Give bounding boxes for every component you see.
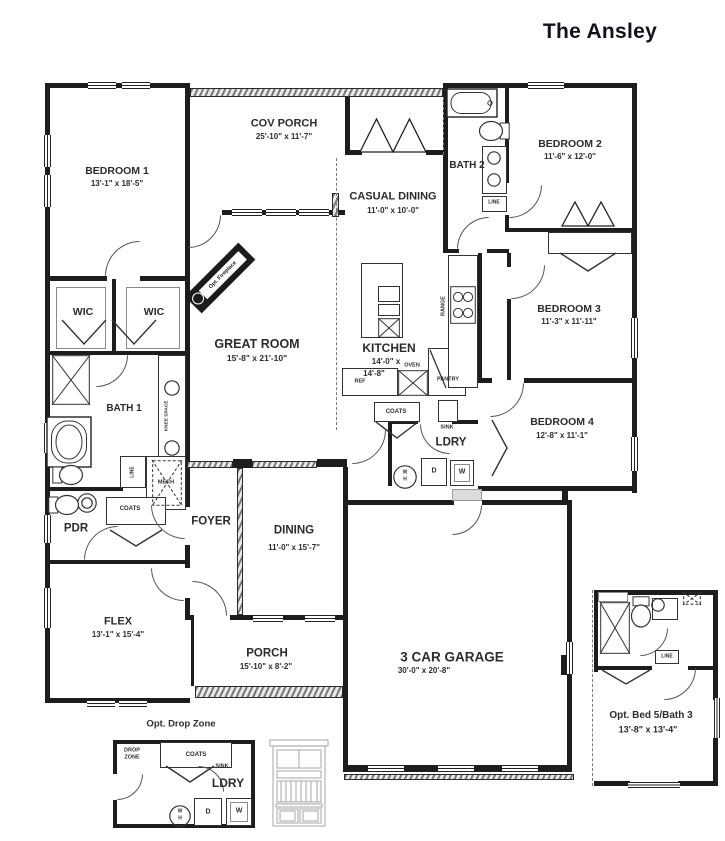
bath1-sink-icon [164, 380, 180, 396]
open-plan-dashed-line [443, 97, 444, 155]
bedroom3-door-arc [511, 265, 545, 299]
bed5-room-door-arc [664, 668, 696, 700]
bed5-entry-doors-icon [602, 670, 650, 684]
wall [113, 740, 117, 774]
label-fx-washer: W [459, 469, 466, 476]
bedroom4-door-arc [490, 383, 524, 417]
wall [713, 738, 718, 786]
wall [632, 83, 637, 493]
label-fx-dryer: D [431, 468, 436, 475]
wall [567, 674, 572, 772]
label-garage-name: 3 CAR GARAGE [400, 650, 504, 664]
bath1-sink-icon [164, 440, 180, 456]
opt-fireplace-label-strip: Opt. Fireplace [199, 251, 247, 299]
window [44, 515, 51, 543]
label-bedroom4-name: BEDROOM 4 [530, 417, 594, 428]
flex-door-arc [151, 568, 184, 601]
label-bedroom1-dims: 13'-1" x 18'-5" [91, 180, 143, 188]
label-fx-wh2: H [403, 478, 407, 483]
half-wall-hatch [344, 774, 574, 780]
label-wic-name: WIC [73, 307, 93, 318]
label-ldry-name: LDRY [212, 777, 244, 789]
bath1-door-arc [96, 355, 128, 387]
label-garage-dims: 30'-0" x 20'-8" [398, 667, 450, 675]
label-insetB-title: Opt. Bed 5/Bath 3 [609, 711, 692, 721]
label-fx-oven: OVEN [404, 363, 420, 369]
label-insetB-dims: 13'-8" x 13'-4" [619, 726, 678, 735]
label-dining-name: DINING [274, 525, 314, 537]
cabinet-elevation-drawing [266, 738, 332, 832]
wall [345, 88, 350, 155]
range-icon [450, 286, 476, 324]
label-fx-line: LINE [661, 655, 672, 660]
wall [45, 560, 189, 564]
label-bath1-name: BATH 1 [106, 404, 141, 414]
wall [426, 150, 448, 155]
label-kitchen-dims1: 14'-0" x [372, 358, 400, 366]
label-pdr-name: PDR [64, 523, 88, 535]
label-bedroom2-name: BEDROOM 2 [538, 139, 602, 150]
wall [713, 590, 718, 700]
half-wall-hatch [252, 461, 317, 468]
bedroom1-door-arc [105, 241, 140, 276]
label-insetA-drop2: ZONE [124, 755, 139, 761]
window [88, 82, 116, 89]
wall [487, 249, 509, 253]
label-kitchen-name: KITCHEN [362, 342, 415, 354]
label-great_room-name: GREAT ROOM [214, 338, 299, 351]
label-fx-knee: KNEE SPACE [166, 401, 171, 432]
window [87, 700, 115, 707]
bedroom2-closet [548, 232, 632, 254]
bath2-tub-icon [446, 88, 498, 118]
window [305, 615, 335, 622]
bedroom2-closet-doors-icon [562, 202, 614, 226]
label-fx-mech: MECH [158, 480, 174, 486]
wic-door-icon [112, 320, 156, 344]
bedroom2-door-arc [509, 185, 542, 218]
label-fx-pantry: PANTRY [437, 377, 459, 383]
bedroom3-closet-doors-icon [560, 253, 616, 271]
label-insetA-drop1: DROP [124, 748, 140, 754]
half-wall-hatch [195, 686, 343, 698]
dishwasher-box [378, 318, 400, 338]
label-wic-name: WIC [144, 307, 164, 318]
window [528, 82, 564, 89]
label-fx-sink: SINK [215, 764, 228, 770]
wall [567, 500, 572, 642]
open-plan-dashed-line [592, 590, 593, 786]
window [438, 765, 474, 772]
island-cabinet [378, 304, 400, 316]
label-fx-range: RANGE [441, 296, 447, 316]
wall [594, 590, 598, 672]
garage-step [452, 489, 482, 501]
wall [443, 249, 459, 253]
label-flex-name: FLEX [104, 617, 132, 628]
foyer-coats-doors-icon [110, 530, 162, 546]
plan-title: The Ansley [505, 20, 695, 44]
wall [45, 276, 107, 281]
window [368, 765, 404, 772]
pdr-sink-icon [81, 497, 93, 509]
half-wall-hatch [187, 461, 233, 468]
label-bath2-name: BATH 2 [449, 161, 484, 171]
bath2-sink-icon [487, 173, 501, 187]
island-cabinet [378, 286, 400, 302]
label-fx-washer: W [236, 808, 243, 815]
window [266, 209, 296, 216]
floor-plan: The Ansley Opt. FireplaceBEDROOM 113'-1 [0, 0, 725, 841]
label-great_room-dims: 15'-8" x 21'-10" [227, 354, 287, 363]
label-fx-dryer: D [205, 809, 210, 816]
wall [317, 459, 347, 467]
label-cov_porch-name: COV PORCH [251, 119, 318, 130]
window [44, 135, 51, 167]
label-flex-dims: 13'-1" x 15'-4" [92, 631, 144, 639]
wall [45, 698, 190, 703]
bed5-shower-icon [600, 602, 630, 654]
coats-doors-icon [376, 422, 418, 438]
front-door-arc [192, 581, 227, 616]
window [714, 698, 720, 738]
label-fx-coats: COATS [120, 506, 141, 512]
wall [191, 620, 194, 686]
bed5-toilet-icon [628, 596, 654, 628]
window [502, 765, 538, 772]
opt-fireplace-icon: Opt. Fireplace [185, 243, 256, 314]
label-fx-line: LINE [131, 466, 136, 477]
window [631, 437, 638, 471]
label-kitchen-dims2: 14'-8" [363, 370, 385, 378]
attic-access-icon [683, 592, 701, 605]
window [631, 318, 638, 358]
window [44, 588, 51, 628]
wic-door-icon [62, 320, 106, 344]
wall [185, 545, 190, 568]
french-doors-icon [360, 119, 426, 152]
pdr-toilet-icon [48, 492, 80, 518]
label-fx-wh2: H [178, 817, 182, 822]
bath2-sink-icon [487, 151, 501, 165]
bed5-shelf [598, 592, 628, 602]
wall [478, 253, 482, 378]
inset-entry-door-arc [117, 774, 143, 800]
open-plan-dashed-line [336, 158, 337, 430]
window [119, 700, 147, 707]
label-fx-coats: COATS [386, 409, 407, 415]
window [44, 175, 51, 207]
ldry-sink [438, 400, 458, 422]
wall [478, 486, 637, 491]
fireplace-group: Opt. Fireplace [180, 238, 260, 318]
inset-coats-doors-icon [166, 766, 214, 782]
opt-fireplace-label: Opt. Fireplace [208, 260, 238, 290]
label-fx-coats: COATS [186, 752, 207, 758]
label-cov_porch-dims: 25'-10" x 11'-7" [256, 133, 312, 141]
window [232, 209, 262, 216]
bath2-toilet-icon [478, 118, 510, 144]
label-dining-dims: 11'-0" x 15'-7" [268, 544, 320, 552]
label-ldry-name: LDRY [436, 437, 467, 449]
label-foyer-name: FOYER [191, 516, 231, 528]
bath1-toilet-icon [52, 462, 84, 488]
window [122, 82, 150, 89]
label-fx-sink: SINK [440, 425, 453, 431]
wall [185, 83, 190, 215]
label-bedroom3-dims: 11'-3" x 11'-11" [541, 318, 596, 326]
label-casual_dining-name: CASUAL DINING [349, 192, 436, 203]
wall [343, 500, 454, 505]
window [299, 209, 329, 216]
half-wall-hatch [237, 468, 243, 615]
label-porch-dims: 15'-10" x 8'-2" [240, 663, 292, 671]
label-bedroom1-name: BEDROOM 1 [85, 166, 149, 177]
window [628, 782, 680, 788]
label-insetA-title: Opt. Drop Zone [146, 719, 215, 729]
bath1-tub-icon [46, 416, 92, 468]
wall [45, 83, 190, 88]
wall [524, 378, 637, 383]
label-fx-wh1: W [403, 471, 408, 476]
wall [594, 781, 630, 786]
shower-icon [52, 355, 90, 405]
label-fx-ref: REF [355, 379, 366, 385]
label-fx-line: LINE [488, 201, 499, 206]
label-bedroom3-name: BEDROOM 3 [537, 304, 601, 315]
label-casual_dining-dims: 11'-0" x 10'-0" [367, 207, 419, 215]
half-wall-hatch [190, 88, 443, 97]
wall [678, 781, 716, 786]
bath2-door-arc [457, 217, 489, 249]
wall [482, 500, 572, 505]
window [566, 642, 573, 674]
label-fx-wh1: W [178, 810, 183, 815]
bedroom4-closet-doors-icon [492, 420, 507, 476]
oven-box [398, 370, 428, 396]
wall [233, 459, 252, 468]
label-bedroom2-dims: 11'-6" x 12'-0" [544, 153, 596, 161]
label-porch-name: PORCH [246, 648, 288, 660]
window [253, 615, 283, 622]
garage-service-door-arc [452, 505, 482, 535]
label-bedroom4-dims: 12'-8" x 11'-1" [536, 432, 588, 440]
wall [507, 299, 511, 380]
